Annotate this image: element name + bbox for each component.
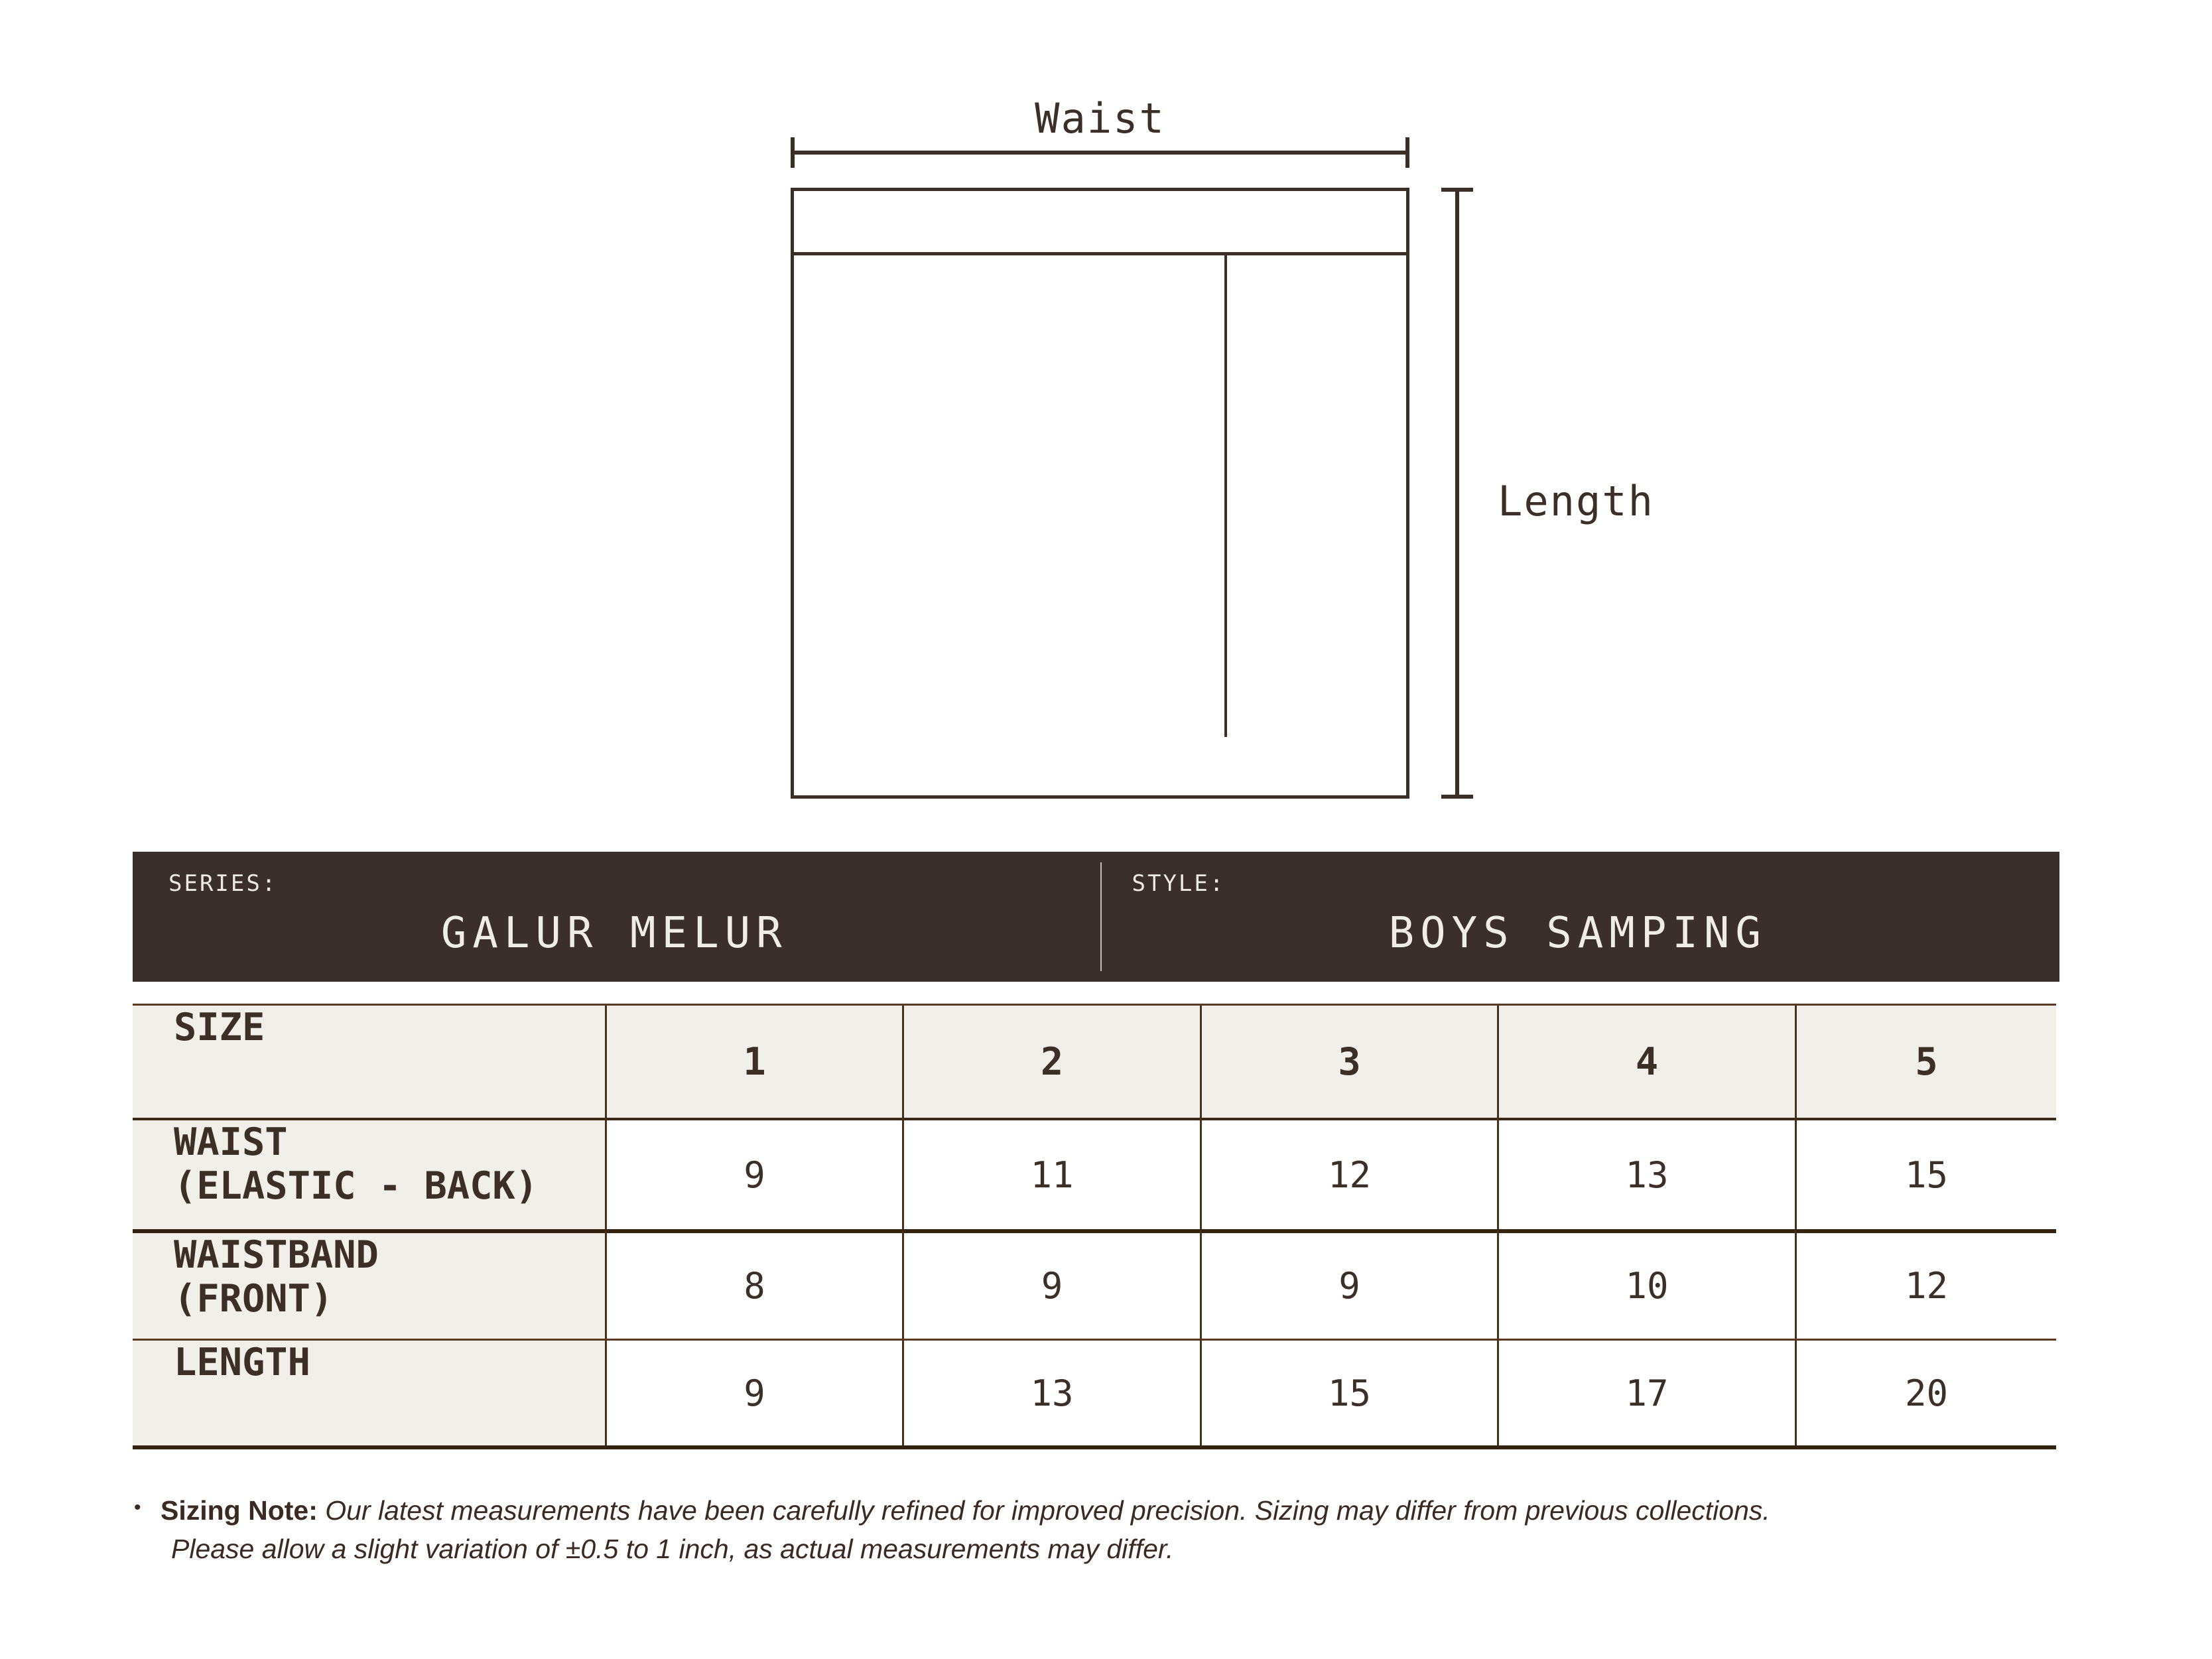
header-size-5: 5 xyxy=(1795,1006,2056,1118)
waistband-value-size1: 8 xyxy=(605,1229,902,1339)
row-label-waistband-line2: (FRONT) xyxy=(174,1277,333,1321)
waist-value-size4: 13 xyxy=(1497,1118,1795,1229)
header-size-4: 4 xyxy=(1497,1006,1795,1118)
header-size: SIZE xyxy=(133,1006,605,1118)
row-label-waistband: WAISTBAND (FRONT) xyxy=(133,1229,605,1339)
length-value-size4: 17 xyxy=(1497,1339,1795,1445)
samping-garment-outline xyxy=(791,188,1409,799)
size-table: SIZE 1 2 3 4 5 WAIST (ELASTIC - BACK) 9 … xyxy=(133,1004,2056,1449)
series-label: SERIES: xyxy=(168,870,277,897)
sizing-note-text1: Our latest measurements have been carefu… xyxy=(318,1495,1770,1526)
row-label-length: LENGTH xyxy=(133,1339,605,1445)
length-measure-cap-top xyxy=(1441,188,1473,192)
waistband-value-size4: 10 xyxy=(1497,1229,1795,1339)
row-label-waist-line1: WAIST xyxy=(174,1120,288,1164)
length-dimension-label: Length xyxy=(1498,477,1654,525)
sizing-note-line1: Sizing Note: Our latest measurements hav… xyxy=(161,1491,2122,1530)
waistband-value-size3: 9 xyxy=(1200,1229,1497,1339)
row-label-waistband-line1: WAISTBAND xyxy=(174,1233,379,1277)
header-size-text: SIZE xyxy=(174,1006,265,1049)
waist-value-size5: 15 xyxy=(1795,1118,2056,1229)
waist-measure-line xyxy=(791,151,1409,155)
waistband-value-size5: 12 xyxy=(1795,1229,2056,1339)
banner-divider-line xyxy=(1100,862,1102,971)
series-style-banner: SERIES: GALUR MELUR STYLE: BOYS SAMPING xyxy=(133,852,2059,982)
header-size-1: 1 xyxy=(605,1006,902,1118)
waist-value-size1: 9 xyxy=(605,1118,902,1229)
waistband-seam-line xyxy=(794,252,1406,255)
waist-measure-tick-right xyxy=(1405,137,1409,168)
sizing-note-line2: Please allow a slight variation of ±0.5 … xyxy=(171,1530,2122,1568)
header-size-2: 2 xyxy=(902,1006,1200,1118)
length-value-size1: 9 xyxy=(605,1339,902,1445)
style-value: BOYS SAMPING xyxy=(1096,909,2060,958)
bullet-icon: • xyxy=(134,1489,141,1527)
row-label-length-line1: LENGTH xyxy=(174,1341,310,1384)
header-size-3: 3 xyxy=(1200,1006,1497,1118)
style-section: STYLE: BOYS SAMPING xyxy=(1096,852,2060,982)
length-value-size3: 15 xyxy=(1200,1339,1497,1445)
row-label-waist-line2: (ELASTIC - BACK) xyxy=(174,1164,538,1208)
waist-value-size3: 12 xyxy=(1200,1118,1497,1229)
length-value-size2: 13 xyxy=(902,1339,1200,1445)
series-value: GALUR MELUR xyxy=(133,909,1096,958)
waist-measure-tick-left xyxy=(791,137,795,168)
sizing-note-label: Sizing Note: xyxy=(161,1495,318,1526)
length-value-size5: 20 xyxy=(1795,1339,2056,1445)
row-label-waist: WAIST (ELASTIC - BACK) xyxy=(133,1118,605,1229)
style-label: STYLE: xyxy=(1132,870,1226,897)
sizing-note: • Sizing Note: Our latest measurements h… xyxy=(133,1491,2122,1568)
series-section: SERIES: GALUR MELUR xyxy=(133,852,1096,982)
size-chart-page: Waist Length SERIES: GALUR MELUR STYLE: … xyxy=(0,0,2212,1659)
waist-value-size2: 11 xyxy=(902,1118,1200,1229)
waist-dimension-label: Waist xyxy=(791,94,1409,143)
length-measure-line xyxy=(1455,188,1459,799)
waistband-value-size2: 9 xyxy=(902,1229,1200,1339)
garment-fold-line xyxy=(1224,255,1227,737)
length-measure-cap-bottom xyxy=(1441,795,1473,799)
